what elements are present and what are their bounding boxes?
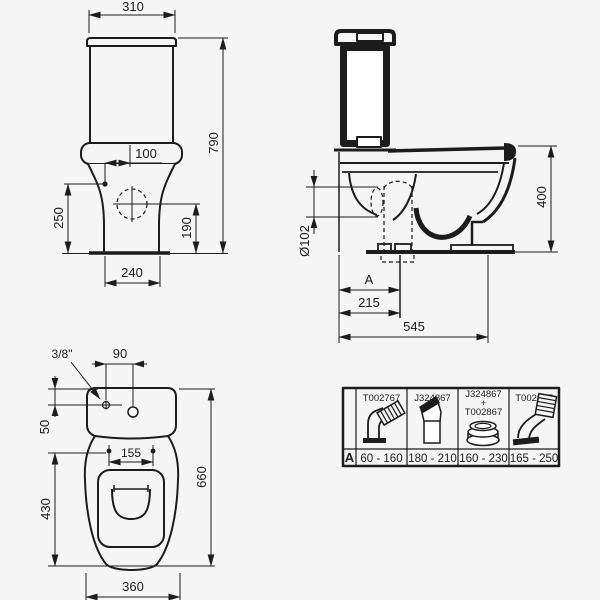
side-trap-back xyxy=(349,173,377,215)
dim-400-label: 400 xyxy=(534,186,549,208)
dim-total-length: 660 xyxy=(179,389,215,566)
dim-inlet-thread-label: 3/8" xyxy=(52,347,73,361)
dim-width-top: 310 xyxy=(89,0,175,33)
plan-view: 3/8" 90 50 155 430 xyxy=(37,346,215,600)
dim-50-label: 50 xyxy=(37,420,52,434)
dim-bowl-width: 360 xyxy=(86,573,180,600)
dim-90-label: 90 xyxy=(113,346,127,361)
dim-o102-label: Ø102 xyxy=(297,225,312,257)
front-cistern-lid xyxy=(87,38,176,46)
dim-inlet-height: 250 xyxy=(51,184,105,253)
front-cistern-tank xyxy=(90,45,173,144)
side-trap-bottom xyxy=(416,208,470,237)
range-3: 160 - 230 xyxy=(459,453,508,465)
side-cistern-tank xyxy=(344,48,387,144)
dim-100-label: 100 xyxy=(135,146,157,161)
part-number-3b: T002867 xyxy=(465,407,503,418)
accessories-table: A T002767 J324867 J324867 + T002867 T002… xyxy=(343,388,559,466)
dim-240-label: 240 xyxy=(121,265,143,280)
side-flush-valve xyxy=(357,137,381,147)
range-2: 180 - 210 xyxy=(408,453,457,465)
side-view: Ø102 400 A 215 545 xyxy=(297,31,558,343)
dim-depth: 545 xyxy=(339,319,488,337)
dim-430-label: 430 xyxy=(38,498,53,520)
side-lid-button xyxy=(357,33,383,41)
range-1: 60 - 160 xyxy=(360,453,402,465)
dim-250-label: 250 xyxy=(51,207,66,229)
dim-base-width: 240 xyxy=(105,265,160,283)
dim-a-label: A xyxy=(365,272,374,287)
dim-790-label: 790 xyxy=(206,132,221,154)
dim-545-label: 545 xyxy=(403,319,425,334)
front-shelf xyxy=(81,143,182,164)
dim-155-label: 155 xyxy=(121,446,141,460)
technical-drawing: 310 790 100 250 190 240 xyxy=(0,0,600,600)
plan-seat-opening xyxy=(98,470,164,547)
front-view: 310 790 100 250 190 240 xyxy=(51,0,228,287)
seal-ring-icon xyxy=(467,422,499,446)
dim-side-height: 400 xyxy=(518,146,557,252)
side-bowl-front xyxy=(483,158,515,222)
dim-310-label: 310 xyxy=(122,0,144,14)
side-bowl-step xyxy=(472,222,483,246)
dim-outlet-diameter: Ø102 xyxy=(297,170,378,257)
side-rim-top xyxy=(388,148,506,151)
dim-rough-in: A xyxy=(339,272,400,290)
dim-660-label: 660 xyxy=(194,466,209,488)
dim-hole-height: 190 xyxy=(179,204,196,253)
dim-215-label: 215 xyxy=(358,295,380,310)
plan-inlet-hole-large xyxy=(128,407,138,417)
side-outlet-fitting-right xyxy=(395,244,411,251)
dim-360-label: 360 xyxy=(122,579,144,594)
dim-190-label: 190 xyxy=(179,217,194,239)
table-row-label: A xyxy=(345,450,355,465)
dim-outlet-center: 215 xyxy=(339,295,400,313)
range-4: 165 - 250 xyxy=(510,453,559,465)
